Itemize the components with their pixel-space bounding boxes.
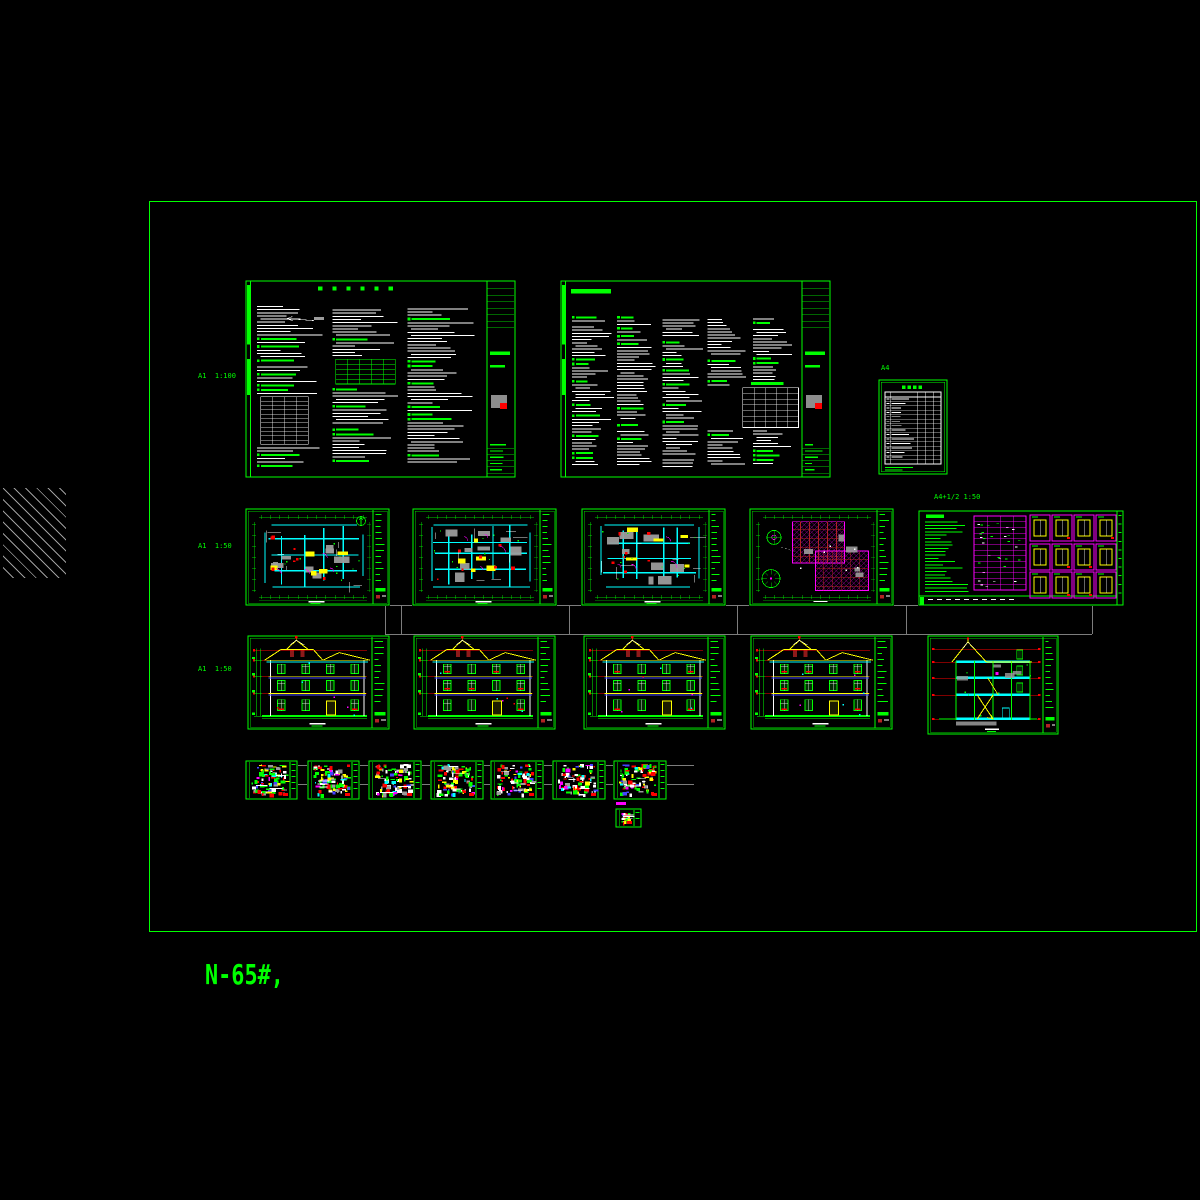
label-row3-sheet-size: A1 1:50 xyxy=(198,665,232,673)
sheet-detail-3[interactable] xyxy=(368,760,422,800)
sheet-floor-plan-2[interactable] xyxy=(412,508,557,606)
roof-plan-drawing xyxy=(749,508,894,606)
detail-1-drawing xyxy=(245,760,298,800)
elevation-1-drawing xyxy=(247,635,390,730)
sheet-elevation-4[interactable] xyxy=(750,635,893,730)
sheet-detail-6[interactable] xyxy=(552,760,606,800)
detail-5-drawing xyxy=(490,760,544,800)
detail-3-drawing xyxy=(368,760,422,800)
detail-8-drawing xyxy=(615,808,642,828)
sheet-detail-1[interactable] xyxy=(245,760,298,800)
connector-line xyxy=(401,605,402,634)
drawing-list-drawing xyxy=(878,379,948,475)
sheet-drawing-list[interactable] xyxy=(878,379,948,475)
sheet-floor-plan-1[interactable] xyxy=(245,508,390,606)
detail-4-drawing xyxy=(430,760,484,800)
floor-plan-1-drawing xyxy=(245,508,390,606)
floor-plan-3-drawing xyxy=(581,508,726,606)
drawing-number-text: N-65#, xyxy=(205,958,284,991)
connector-line xyxy=(906,605,907,634)
general-notes-2-drawing xyxy=(560,280,831,478)
sheet-building-section[interactable] xyxy=(927,635,1059,735)
sheet-floor-plan-3[interactable] xyxy=(581,508,726,606)
cad-model-space[interactable]: A1 1:100 A4 A4+1/2 1:50 A1 1:50 A1 1:50 … xyxy=(0,0,1200,1200)
elevation-3-drawing xyxy=(583,635,726,730)
label-row2-sheet-size: A1 1:50 xyxy=(198,542,232,550)
sheet-detail-5[interactable] xyxy=(490,760,544,800)
sheet-general-notes-1[interactable] xyxy=(245,280,516,478)
label-schedule-sheet-size: A4+1/2 1:50 xyxy=(934,493,980,501)
elevation-4-drawing xyxy=(750,635,893,730)
building-section-drawing xyxy=(927,635,1059,735)
sheet-roof-plan[interactable] xyxy=(749,508,894,606)
sheet-detail-2[interactable] xyxy=(307,760,360,800)
detail-6-drawing xyxy=(552,760,606,800)
label-row1-sheet-size: A1 1:100 xyxy=(198,372,236,380)
connector-line xyxy=(385,605,386,634)
connector-line xyxy=(1092,605,1093,634)
sheet-door-window-schedule[interactable] xyxy=(918,510,1124,606)
sheet-detail-7[interactable] xyxy=(613,760,667,800)
sheet-detail-4[interactable] xyxy=(430,760,484,800)
detail-8-caption xyxy=(616,802,626,805)
sheet-general-notes-2[interactable] xyxy=(560,280,831,478)
detail-2-drawing xyxy=(307,760,360,800)
elevation-2-drawing xyxy=(413,635,556,730)
hatch-block xyxy=(3,488,66,578)
detail-7-drawing xyxy=(613,760,667,800)
sheet-elevation-3[interactable] xyxy=(583,635,726,730)
door-window-schedule-drawing xyxy=(918,510,1124,606)
sheet-detail-8[interactable] xyxy=(615,808,642,828)
sheet-elevation-1[interactable] xyxy=(247,635,390,730)
connector-line xyxy=(737,605,738,634)
floor-plan-2-drawing xyxy=(412,508,557,606)
general-notes-1-drawing xyxy=(245,280,516,478)
connector-line xyxy=(569,605,570,634)
label-a4-sheet-size: A4 xyxy=(881,364,889,372)
sheet-elevation-2[interactable] xyxy=(413,635,556,730)
